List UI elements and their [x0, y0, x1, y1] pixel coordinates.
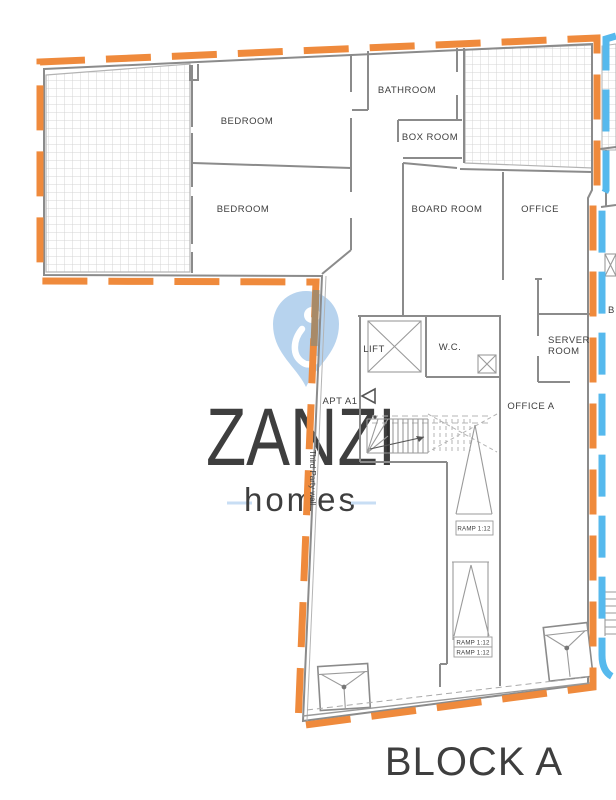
duct-shaft-cross [478, 355, 496, 373]
bedrooms-right-wall [322, 55, 351, 274]
label-bedroom-1: BEDROOM [221, 116, 274, 127]
bathroom-walls [352, 48, 457, 120]
label-lift: LIFT [363, 344, 385, 355]
location-pin-icon [273, 291, 339, 387]
label-ramp-lower-2: RAMP 1:12 [456, 650, 490, 657]
stair-dashed-upper-zone [428, 414, 497, 453]
ramp-lower-triangle [452, 562, 489, 640]
label-apt-a1: APT A1 [322, 396, 357, 407]
label-bedroom-2: BEDROOM [217, 204, 270, 215]
server-room-walls [535, 279, 592, 382]
block-a-title: BLOCK A [385, 740, 563, 784]
label-server-room-line1: SERVER [548, 335, 590, 346]
floor-plan-svg: ZANZI homes [0, 0, 616, 800]
label-box-room: BOX ROOM [402, 132, 458, 143]
hatched-areas [46, 44, 616, 272]
box-room-walls [398, 48, 464, 163]
label-ramp-lower-1: RAMP 1:12 [456, 640, 490, 647]
terrace-hatch-left-pattern [46, 64, 190, 272]
label-third-party-wall: Third Party wall [308, 450, 317, 505]
party-wall-segment [314, 290, 316, 346]
terrace-hatch-right-pattern [465, 45, 592, 168]
stair-post-dot [373, 415, 376, 418]
watermark-tagline: homes [244, 481, 358, 518]
label-ramp-upper: RAMP 1:12 [457, 526, 491, 533]
board-room-walls [403, 163, 592, 316]
label-board-room: BOARD ROOM [412, 204, 483, 215]
label-office-a: OFFICE A [507, 401, 554, 412]
label-wc: W.C. [439, 342, 462, 353]
label-bathroom: BATHROOM [378, 85, 436, 96]
terrace-bedroom-wall [190, 64, 198, 273]
label-adjacent-block-partial: B [608, 305, 615, 316]
entrance-threshold-right [543, 623, 593, 682]
ramp-upper-triangle [456, 425, 492, 514]
label-server-room-line2: ROOM [548, 346, 580, 357]
bedroom-divider-wall [193, 163, 351, 168]
label-office: OFFICE [521, 204, 559, 215]
floor-plan-page: ZANZI homes [0, 0, 616, 800]
